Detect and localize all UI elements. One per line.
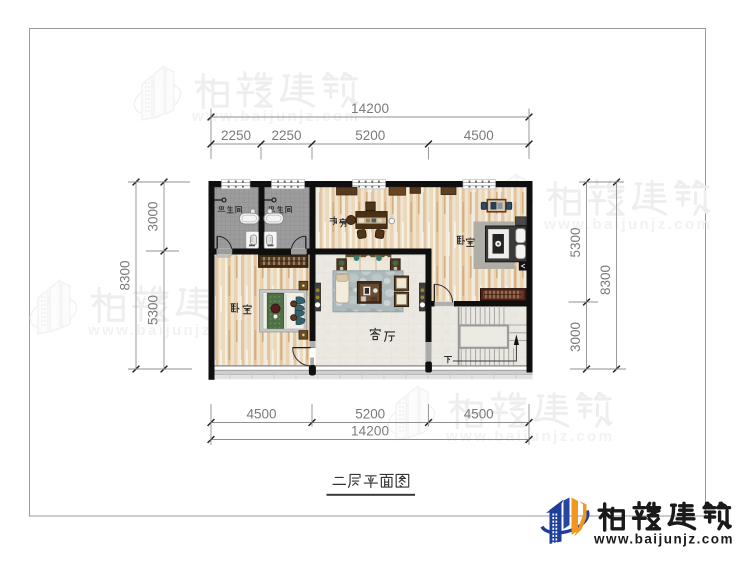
svg-text:5200: 5200 <box>355 407 385 422</box>
svg-text:4500: 4500 <box>464 407 494 422</box>
svg-text:5300: 5300 <box>146 295 161 325</box>
svg-text:3000: 3000 <box>146 202 161 232</box>
svg-text:5300: 5300 <box>568 228 583 258</box>
svg-text:8300: 8300 <box>118 261 133 291</box>
svg-text:4500: 4500 <box>247 407 277 422</box>
svg-text:2250: 2250 <box>272 128 302 143</box>
svg-text:www.baijunjz.com: www.baijunjz.com <box>593 532 733 547</box>
svg-text:2250: 2250 <box>221 128 251 143</box>
svg-text:14200: 14200 <box>351 424 389 439</box>
svg-text:5200: 5200 <box>355 128 385 143</box>
svg-text:www.baijunjz.com: www.baijunjz.com <box>191 108 359 125</box>
svg-text:8300: 8300 <box>598 265 613 295</box>
svg-text:14200: 14200 <box>351 101 389 116</box>
svg-text:4500: 4500 <box>464 128 494 143</box>
svg-text:3000: 3000 <box>568 322 583 352</box>
